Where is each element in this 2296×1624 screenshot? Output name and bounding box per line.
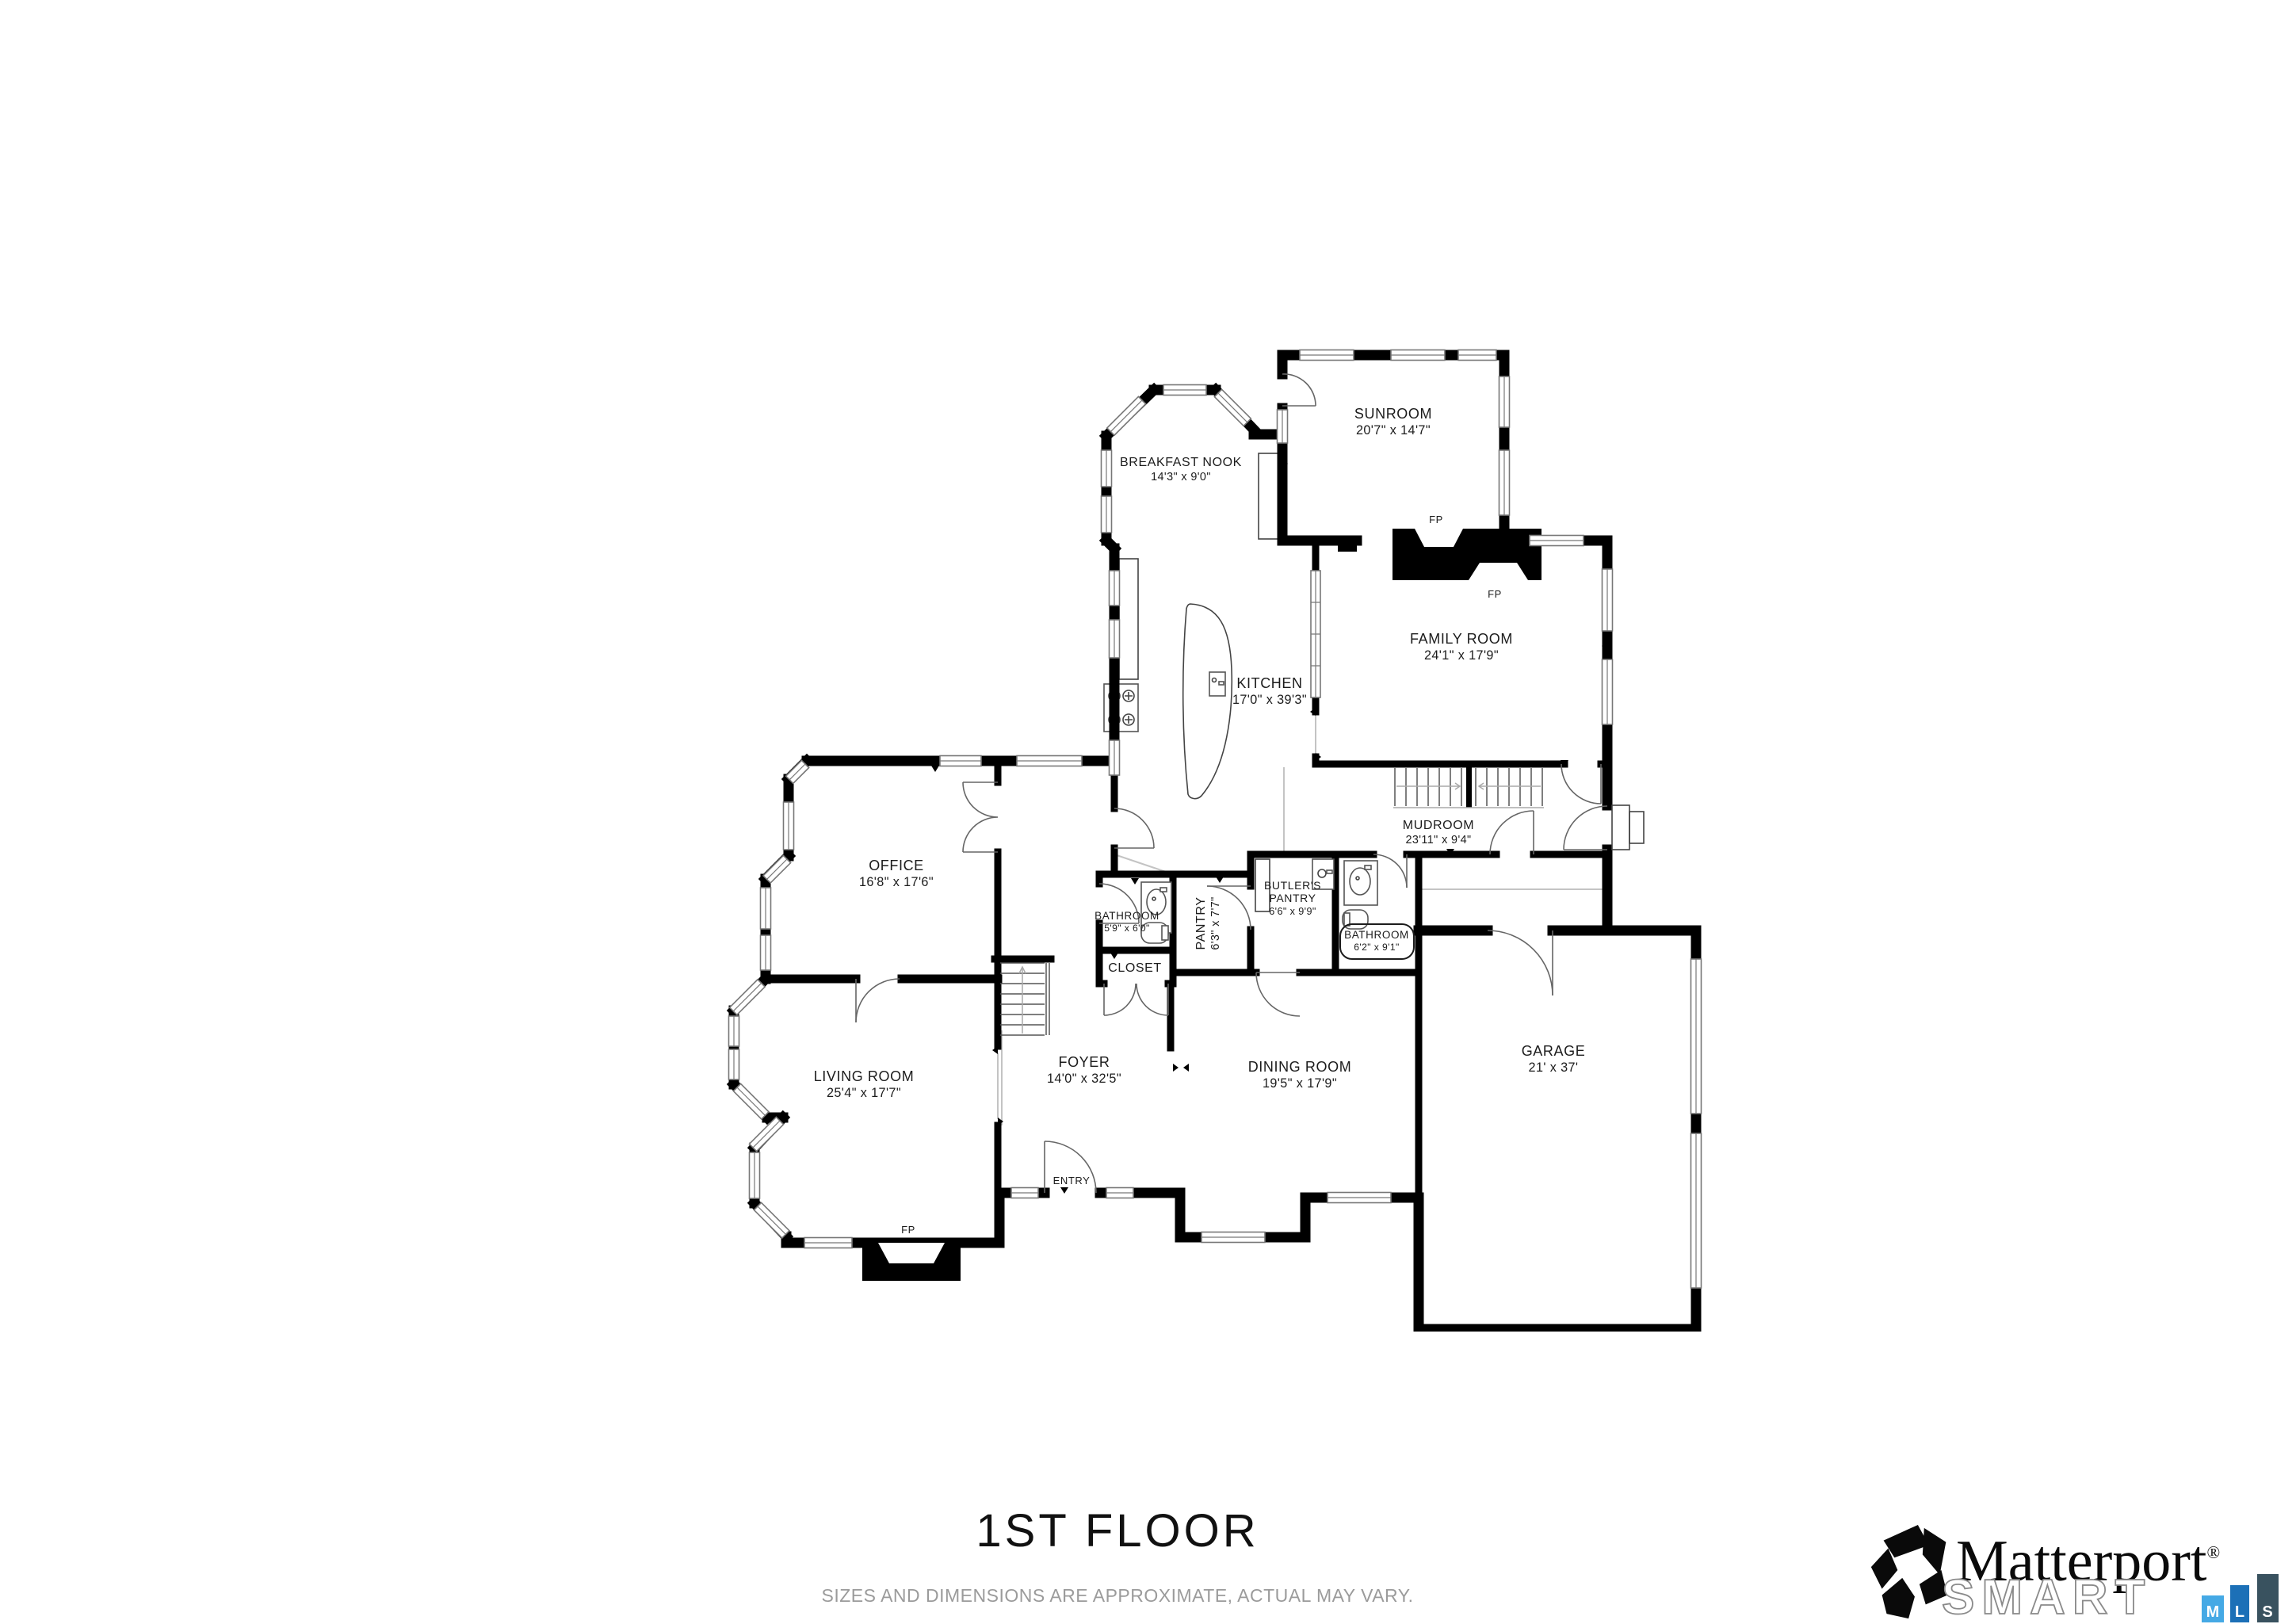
matterport-logo-text: Matterport® — [1956, 1528, 2220, 1595]
mls-s-letter: S — [2262, 1603, 2272, 1621]
mls-l-square — [2230, 1585, 2249, 1622]
exterior-steps — [1612, 805, 1644, 850]
mls-m-square — [2202, 1595, 2224, 1622]
fireplace-sunroom-family — [1392, 529, 1541, 580]
floor-plan-svg: BREAKFAST NOOK14'3" x 9'0"SUNROOM20'7" x… — [666, 333, 1807, 1332]
windows — [729, 350, 1702, 1289]
room-label-office: OFFICE16'8" x 17'6" — [859, 858, 934, 889]
room-label-dining-room: DINING ROOM19'5" x 17'9" — [1248, 1059, 1352, 1091]
room-label-fp-living: FP — [901, 1224, 915, 1236]
room-label-fp-family: FP — [1488, 588, 1502, 600]
room-label-entry: ENTRY — [1053, 1175, 1091, 1186]
disclaimer-text: SIZES AND DIMENSIONS ARE APPROXIMATE, AC… — [821, 1585, 1413, 1607]
room-label-sunroom: SUNROOM20'7" x 14'7" — [1354, 406, 1432, 438]
room-label-family-room: FAMILY ROOM24'1" x 17'9" — [1410, 631, 1513, 663]
door-arcs — [856, 374, 1607, 1193]
room-label-fp-sunroom: FP — [1429, 514, 1443, 525]
bathroom2-fixtures — [1343, 861, 1377, 929]
staircase-mudroom — [1393, 766, 1544, 808]
registered-mark: ® — [2206, 1542, 2220, 1562]
room-label-closet: CLOSET — [1108, 961, 1162, 975]
room-label-bathroom-2: BATHROOM6'2" x 9'1" — [1344, 929, 1409, 953]
room-label-kitchen: KITCHEN17'0" x 39'3" — [1232, 675, 1307, 707]
room-label-mudroom: MUDROOM23'11" x 9'4" — [1403, 819, 1474, 846]
floor-plan-page: { "footer": { "title": "1ST FLOOR", "dis… — [0, 0, 2296, 1624]
kitchen-island — [1183, 604, 1232, 799]
mls-s-square — [2257, 1574, 2279, 1622]
room-label-garage: GARAGE21' x 37' — [1522, 1043, 1586, 1075]
room-label-breakfast-nook: BREAKFAST NOOK14'3" x 9'0" — [1120, 456, 1242, 483]
mls-m-letter: M — [2206, 1603, 2220, 1621]
matterport-logo-icon — [1869, 1522, 1958, 1623]
staircase-foyer — [1000, 963, 1049, 1035]
room-label-pantry: PANTRY6'3" x 7'7" — [1194, 896, 1222, 950]
room-label-foyer: FOYER14'0" x 32'5" — [1047, 1054, 1121, 1086]
mls-l-letter: L — [2235, 1603, 2244, 1621]
exterior-walls — [734, 355, 1696, 1329]
branding-area: Matterport® SMART M L S — [1855, 1506, 2296, 1624]
fireplace-living — [862, 1243, 961, 1281]
stove-icon — [1104, 684, 1138, 732]
room-label-living-room: LIVING ROOM25'4" x 17'7" — [814, 1068, 915, 1100]
room-label-butlers-pantry: BUTLER'SPANTRY6'6" x 9'9" — [1264, 879, 1321, 917]
floor-title: 1ST FLOOR — [976, 1504, 1259, 1557]
